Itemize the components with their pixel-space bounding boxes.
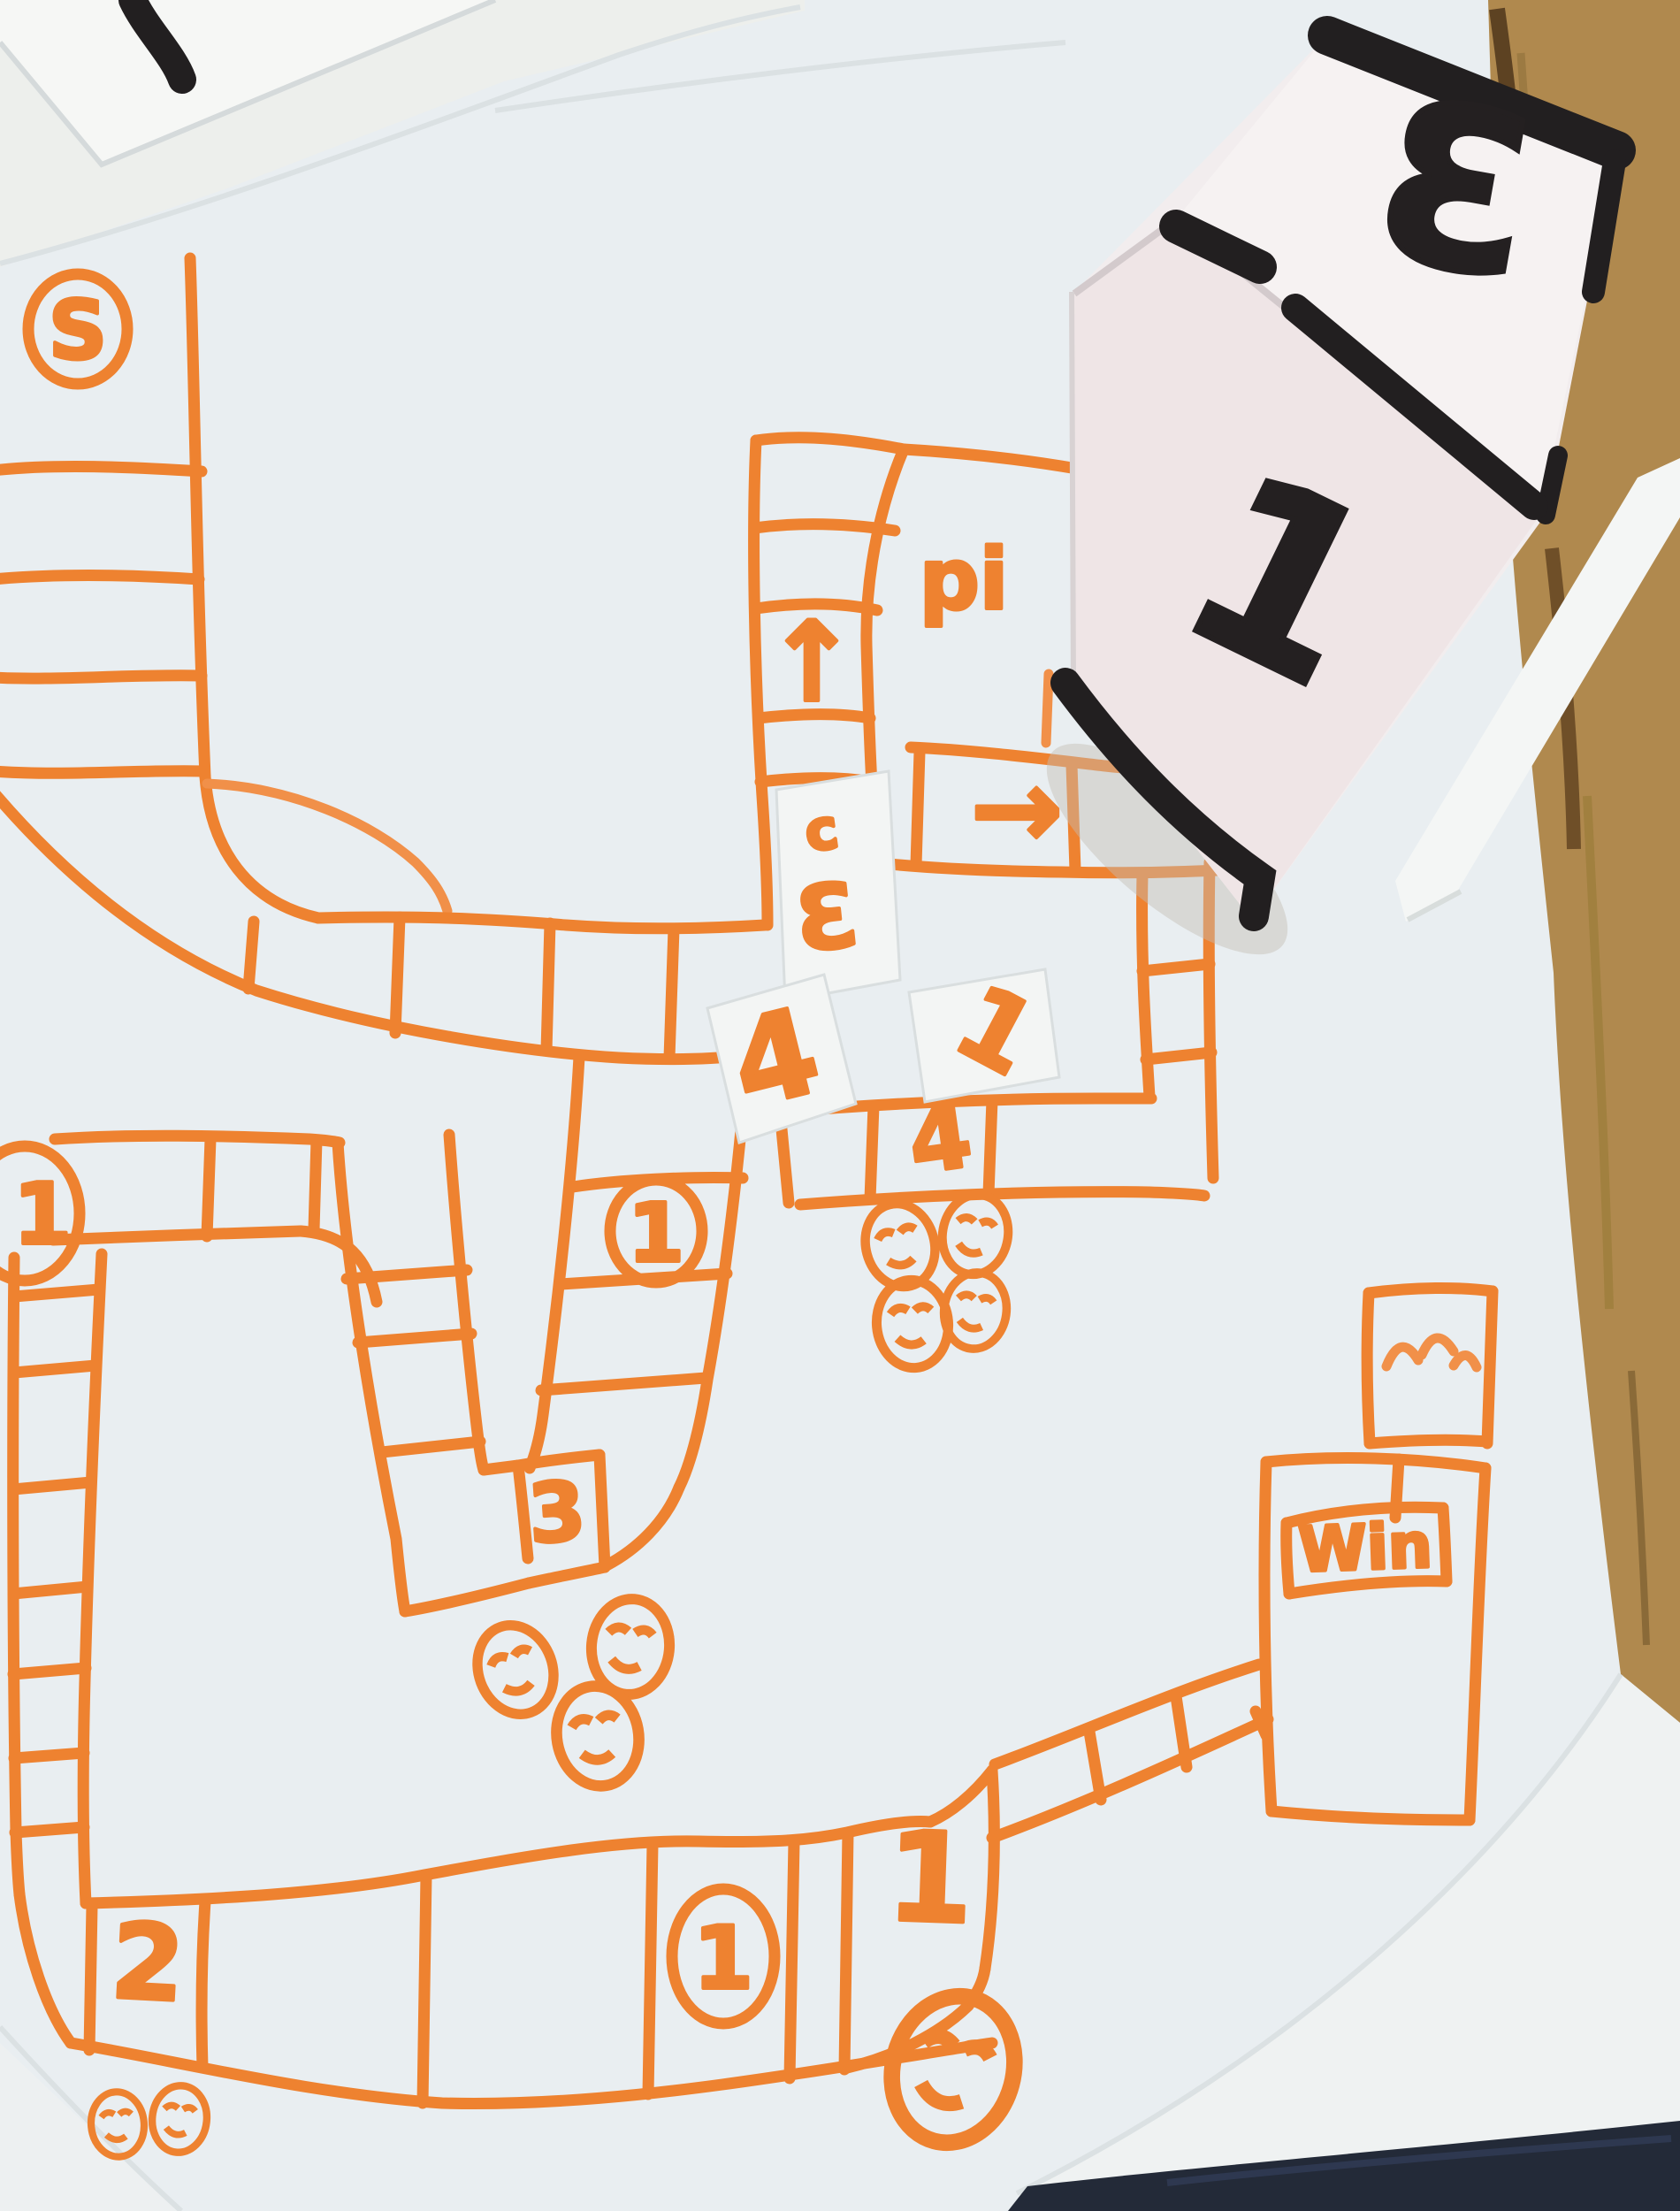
up-arrow-icon: ↑ bbox=[766, 599, 859, 727]
photo-of-hand-drawn-board-game: S bbox=[0, 0, 1680, 2211]
circled-one-bottom-label: 1 bbox=[693, 1909, 753, 2009]
win-label: Win bbox=[1297, 1509, 1433, 1586]
cell-two-label: 2 bbox=[109, 1900, 187, 2025]
cell-three-label: 3 bbox=[525, 1464, 588, 1562]
start-label: S bbox=[49, 283, 107, 378]
pit-label: pi bbox=[920, 532, 1009, 629]
card-three: c 3 bbox=[776, 771, 900, 1001]
circled-one-left-label: 1 bbox=[13, 1167, 72, 1264]
cell-one-label: 1 bbox=[884, 1805, 975, 1952]
circled-one-middle-label: 1 bbox=[628, 1186, 684, 1281]
card-three-value: 3 bbox=[790, 863, 862, 973]
